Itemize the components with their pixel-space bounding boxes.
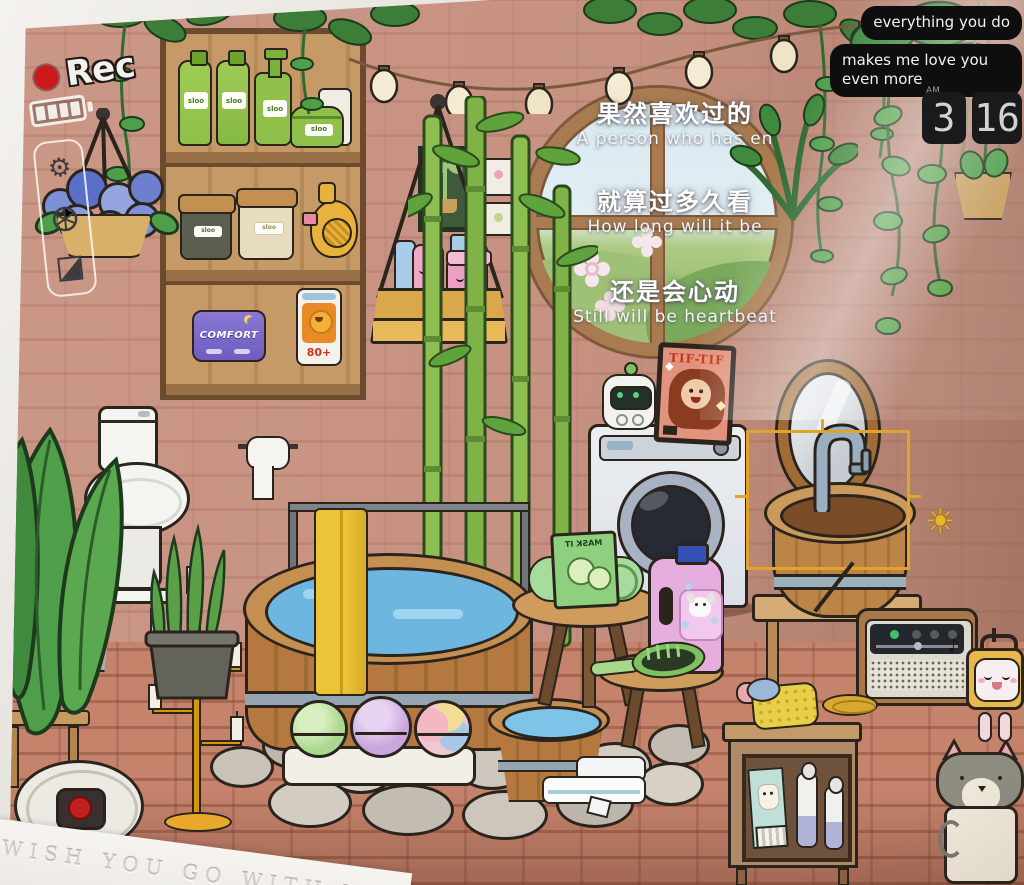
spf-label: 80+ (298, 346, 340, 359)
rec-dot-icon (33, 64, 60, 91)
electric-toothbrush (796, 772, 818, 848)
face-mask-packet[interactable]: MASK IT (550, 530, 620, 609)
radio[interactable]: ♪ (856, 600, 980, 708)
bath-bomb-green (290, 700, 348, 758)
bath-bomb-rainbow (414, 700, 472, 758)
lyric-zh: 还是会心动 (505, 272, 845, 307)
bathroom-cabinet[interactable] (722, 710, 864, 885)
flip-clock: AM 3 16 (920, 84, 1024, 146)
gold-soap-dish[interactable] (822, 694, 878, 716)
lyric-en: Still will be heartbeat (505, 307, 845, 327)
chat-overlay: everything you do makes me love you even… (822, 6, 1022, 97)
mask-label: MASK IT (553, 537, 613, 549)
toilet-paper-holder[interactable] (238, 436, 302, 506)
electric-toothbrush (824, 786, 844, 850)
bath-bomb-purple (350, 696, 412, 758)
music-note-icon: ♪ (948, 636, 959, 656)
box-cat-plush[interactable] (966, 628, 1024, 764)
bath-bomb-tray[interactable] (282, 694, 478, 790)
lyric-en: A person who has en (505, 129, 845, 149)
toothpaste-tube (747, 767, 788, 849)
sunscreen-bottle[interactable]: 80+ (296, 288, 342, 366)
lyric-line-1: 果然喜欢过的 A person who has en (505, 94, 845, 149)
lyric-zh: 果然喜欢过的 (505, 94, 845, 129)
lyric-zh: 就算过多久看 (505, 182, 845, 217)
chat-message: everything you do (861, 6, 1022, 40)
clock-hour: 3 (922, 92, 966, 144)
lyric-line-2: 就算过多久看 How long will it be (505, 182, 845, 237)
shutter-aperture-icon[interactable] (51, 205, 80, 234)
folded-towels[interactable] (542, 756, 650, 816)
selection-box[interactable] (746, 430, 910, 570)
lyric-en: How long will it be (505, 217, 845, 237)
robot-toy[interactable] (600, 370, 660, 432)
magazine[interactable]: TIF-TIF (653, 342, 736, 446)
contrast-icon[interactable] (57, 256, 83, 282)
snake-plant[interactable] (140, 520, 250, 710)
settings-gear-icon[interactable]: ⚙ (47, 154, 73, 182)
gameplay-photo: ☀ sloo sloo sloo sloo sloo (0, 0, 1024, 885)
shelf-board (166, 384, 360, 399)
bath-sponge[interactable] (750, 681, 820, 731)
banana-plant[interactable] (0, 260, 152, 740)
sun-decal[interactable]: ☀ (925, 502, 955, 542)
yellow-towel[interactable] (314, 508, 368, 696)
clock-minute: 16 (972, 92, 1022, 144)
lyric-line-3: 还是会心动 Still will be heartbeat (505, 272, 845, 327)
comfort-pads-pack[interactable]: COMFORT (192, 310, 266, 362)
comfort-label: COMFORT (194, 330, 264, 341)
